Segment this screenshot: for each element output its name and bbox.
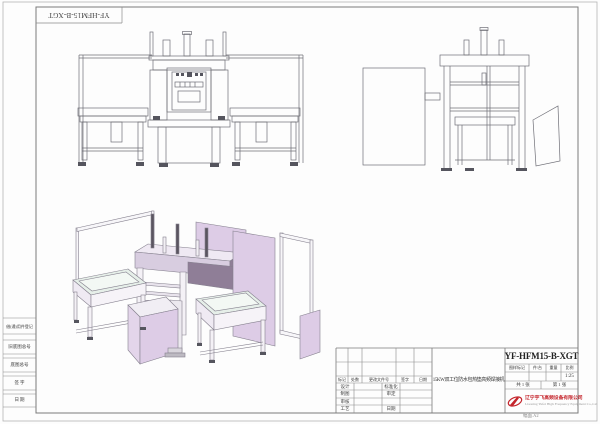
- spec-header-weight: 重量: [546, 365, 561, 371]
- side-view-lines: [363, 28, 560, 169]
- sheet-number: 第 1 张: [541, 382, 578, 388]
- rev-header-docno: 更改文件号: [362, 377, 396, 383]
- spec-header-qty: 件/台: [529, 365, 546, 371]
- front-view-dark-details: [78, 72, 298, 167]
- sign-date: 日期: [382, 406, 400, 412]
- drawing-sheet: YF-HFM15-B-XGT 借(通)用件登记 旧底图总号 底图总号 签 字 日…: [0, 0, 600, 424]
- left-cell-old-master-no: 旧底图总号: [4, 341, 35, 353]
- spec-header-scale: 比例: [561, 365, 578, 371]
- sign-draft: 制图: [336, 391, 354, 397]
- paper-size-note: 幅面.A2: [523, 414, 539, 419]
- company-logo-icon: [507, 395, 523, 408]
- company-name-cn: 辽宁宇飞高频设备有限公司: [525, 397, 597, 402]
- rev-header-sign: 签字: [396, 377, 414, 383]
- iso-view-shapes: [73, 211, 320, 364]
- sign-approve: 审定: [382, 391, 400, 397]
- rev-header-mark: 标记: [336, 377, 348, 383]
- sign-process: 工艺: [336, 406, 354, 412]
- left-cell-date: 日 期: [4, 395, 35, 406]
- sign-design: 设计: [336, 384, 354, 390]
- left-cell-signature: 签 字: [4, 377, 35, 389]
- drawing-code: YF-HFM15-B-XGT: [505, 349, 578, 364]
- company-block: 辽宁宇飞高频设备有限公司 Liaoning Yufei High Frequen…: [507, 391, 577, 412]
- company-name-en: Liaoning Yufei High Frequency Equipment …: [525, 403, 597, 407]
- sign-standardize: 标准化: [382, 384, 400, 390]
- left-cell-master-no: 底图总号: [4, 359, 35, 371]
- sign-check: 审核: [336, 399, 354, 405]
- left-cell-borrow-record: 借(通)用件登记: [4, 320, 35, 333]
- product-name: 15KW双工位防水包热垫高频焊接机: [433, 348, 504, 413]
- rev-header-date: 日期: [414, 377, 432, 383]
- rev-header-count: 处数: [348, 377, 362, 383]
- spec-header-mark: 图样标记: [505, 365, 529, 371]
- spec-value-scale: 1:25: [561, 373, 578, 380]
- side-view-feet: [441, 168, 527, 171]
- front-view-lines: [78, 32, 303, 164]
- sheets-total: 共 1 张: [505, 382, 541, 388]
- top-sheet-label: YF-HFM15-B-XGT: [36, 7, 122, 23]
